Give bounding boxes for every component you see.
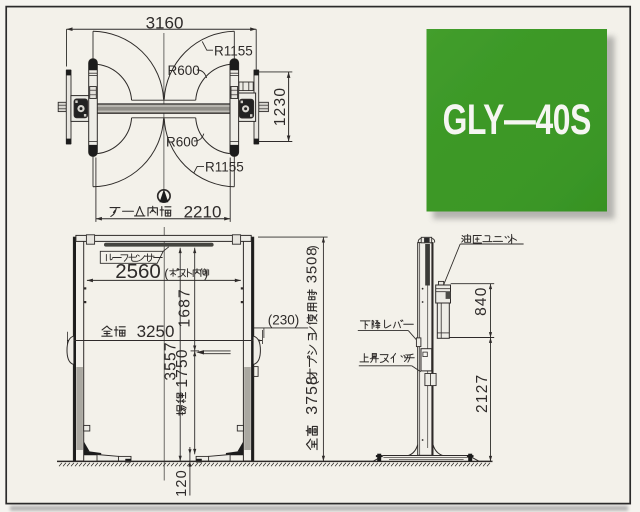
- svg-text:2560: 2560: [115, 260, 161, 283]
- svg-text:3160: 3160: [146, 14, 184, 33]
- svg-text:3508: 3508: [304, 247, 321, 284]
- svg-text:): ): [204, 266, 208, 281]
- svg-text:1230: 1230: [272, 87, 289, 126]
- svg-text:): ): [306, 245, 320, 249]
- svg-text:(: (: [164, 266, 169, 281]
- svg-text:840: 840: [473, 286, 490, 315]
- svg-text:120: 120: [174, 469, 190, 497]
- svg-text:(230): (230): [268, 313, 300, 328]
- svg-text:R600: R600: [166, 134, 198, 149]
- svg-text:GLY—40S: GLY—40S: [443, 96, 591, 144]
- svg-text:R1155: R1155: [205, 159, 244, 174]
- svg-text:R1155: R1155: [214, 43, 253, 58]
- svg-text:R600: R600: [168, 63, 200, 78]
- svg-text:1687: 1687: [177, 288, 194, 327]
- svg-text:3250: 3250: [137, 322, 175, 341]
- svg-text:2127: 2127: [474, 374, 491, 413]
- svg-text:1750: 1750: [174, 348, 191, 387]
